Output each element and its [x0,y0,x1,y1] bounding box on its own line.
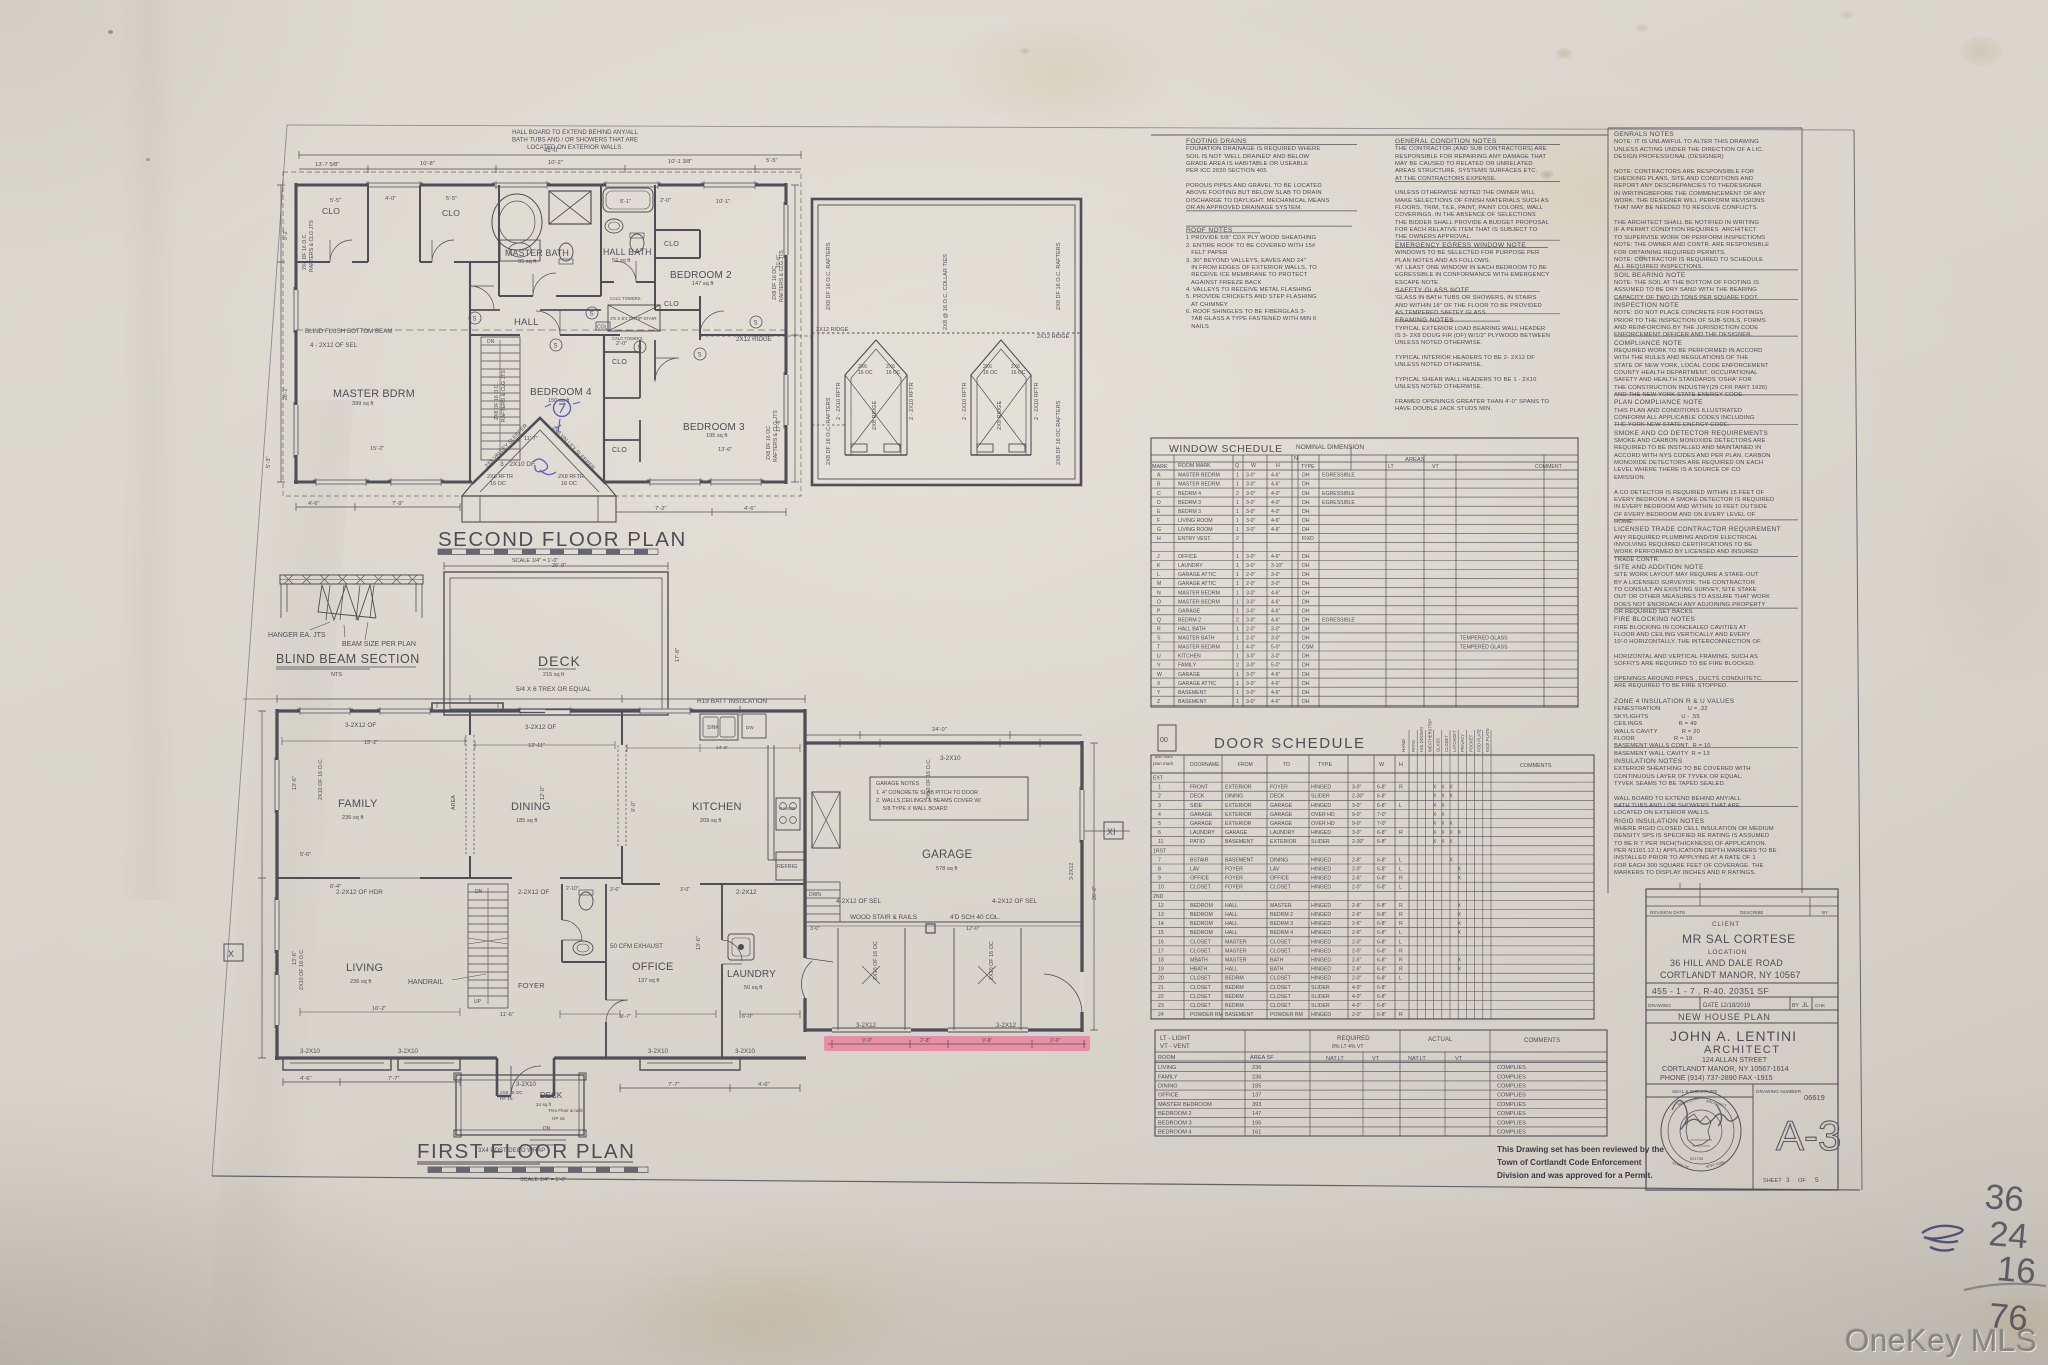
svg-text:3'-0": 3'-0" [680,887,690,893]
svg-text:CLOSET: CLOSET [1270,948,1292,954]
svg-text:CLOSET: CLOSET [1190,939,1212,945]
svg-text:HINGED: HINGED [1311,903,1331,909]
svg-text:LIVING: LIVING [346,962,383,974]
svg-text:1: 1 [1236,527,1239,533]
svg-text:5/8 TYPE X WALL BOARD: 5/8 TYPE X WALL BOARD [883,806,948,812]
svg-text:2'-8": 2'-8" [920,1038,930,1044]
svg-text:ARCHITECT: ARCHITECT [1704,1044,1780,1056]
svg-text:CLO: CLO [664,301,679,308]
svg-text:D: D [1157,500,1161,506]
svg-text:236 sq ft: 236 sq ft [342,815,364,821]
svg-text:COMPLIES: COMPLIES [1497,1111,1526,1117]
svg-text:6-8": 6-8" [1377,803,1386,809]
svg-text:12: 12 [1158,903,1164,909]
svg-text:3-0": 3-0" [1352,830,1361,836]
svg-text:1: 1 [1236,608,1239,614]
svg-text:19: 19 [1158,967,1164,973]
svg-text:MR SAL CORTESE: MR SAL CORTESE [1682,932,1796,946]
svg-text:Q: Q [1235,463,1239,469]
svg-text:00: 00 [1160,737,1168,744]
svg-text:DH: DH [1302,482,1310,488]
svg-text:CORTLANDT MANOR, NY 10567: CORTLANDT MANOR, NY 10567 [1660,970,1801,980]
svg-text:RAFTERS & CLG JTS: RAFTERS & CLG JTS [309,220,315,272]
svg-text:15'-2": 15'-2" [370,446,384,452]
svg-text:17: 17 [1158,948,1164,954]
svg-text:SLIDER: SLIDER [1311,794,1330,800]
svg-text:L: L [1157,572,1160,578]
svg-text:4-0": 4-0" [1352,985,1361,991]
svg-text:JOHN A. LENTINI: JOHN A. LENTINI [1670,1028,1797,1044]
svg-text:2-6": 2-6" [1352,921,1361,927]
svg-text:4-6": 4-6" [1271,690,1280,696]
svg-text:16 OC: 16 OC [886,370,901,376]
svg-text:2-6": 2-6" [1352,876,1361,882]
svg-text:13'-7 5/8": 13'-7 5/8" [315,162,339,168]
svg-text:9'-0": 9'-0" [631,801,637,812]
svg-text:12'-11": 12'-11" [528,743,545,749]
svg-text:LAUNDRY: LAUNDRY [1190,830,1215,836]
svg-text:DWN: DWN [809,892,821,898]
svg-text:HALL: HALL [514,317,539,328]
svg-text:BEAM SIZE PER PLAN: BEAM SIZE PER PLAN [342,641,416,648]
svg-text:3-2X12: 3-2X12 [996,1022,1017,1029]
svg-text:TO: TO [1283,762,1290,768]
svg-text:16 OC: 16 OC [490,481,506,487]
svg-text:1: 1 [1236,581,1239,587]
svg-text:3'-0": 3'-0" [810,926,820,932]
svg-text:GARAGE: GARAGE [1270,812,1293,818]
svg-text:X: X [1433,803,1437,809]
svg-text:137: 137 [1252,1093,1261,1099]
svg-text:X: X [1458,903,1462,909]
svg-text:2-0": 2-0" [1352,867,1361,873]
svg-text:V: V [1157,663,1161,669]
svg-text:2: 2 [1158,794,1161,800]
svg-text:2-6": 2-6" [1352,930,1361,936]
svg-text:5: 5 [1158,821,1161,827]
svg-text:NAT.LT: NAT.LT [1408,1056,1426,1062]
svg-text:GARAGE NOTES: GARAGE NOTES [876,781,920,787]
svg-text:COMPLIES: COMPLIES [1497,1102,1526,1108]
svg-text:X: X [1458,967,1462,973]
svg-text:CLIENT: CLIENT [1712,921,1740,928]
svg-text:3-2X10: 3-2X10 [735,1048,756,1055]
svg-text:DECK: DECK [538,653,581,669]
svg-text:CLOSET: CLOSET [1270,985,1292,991]
svg-text:EXTERIOR: EXTERIOR [1225,803,1252,809]
svg-text:OF: OF [1798,1178,1806,1184]
svg-text:9'-7": 9'-7" [620,1014,631,1020]
svg-text:3-2X12: 3-2X12 [1069,863,1075,880]
svg-text:4'D SCH 40 COL.: 4'D SCH 40 COL. [950,914,1000,921]
svg-text:DECK: DECK [1190,794,1205,800]
svg-text:195: 195 [1252,1120,1261,1126]
svg-text:9'-2": 9'-2" [283,230,289,240]
svg-text:CLO: CLO [612,359,627,366]
svg-text:4-0": 4-0" [1271,509,1280,515]
svg-text:2X12 RIDGE: 2X12 RIDGE [1037,334,1070,340]
svg-text:3-0": 3-0" [1246,518,1255,524]
svg-text:BATH: BATH [1270,967,1284,973]
svg-text:1RST: 1RST [1153,848,1167,854]
svg-text:FIRST FLOOR PLAN: FIRST FLOOR PLAN [417,1140,635,1163]
svg-text:4-6": 4-6" [1271,590,1280,596]
svg-text:DH: DH [1302,608,1310,614]
svg-text:X: X [1433,785,1437,791]
svg-text:2-0": 2-0" [1352,939,1361,945]
svg-text:SECOND FLOOR PLAN: SECOND FLOOR PLAN [438,528,687,551]
svg-text:FRONT: FRONT [1190,785,1209,791]
svg-text:8: 8 [1158,867,1161,873]
svg-text:3-0": 3-0" [1246,699,1255,705]
svg-text:BEDRM 3: BEDRM 3 [1178,500,1201,506]
svg-text:X: X [228,949,234,959]
svg-text:DINING: DINING [1270,857,1288,863]
svg-text:R: R [1399,967,1403,973]
svg-text:13'-6": 13'-6" [292,951,298,965]
svg-text:E: E [1157,509,1161,515]
svg-text:F: F [1157,518,1160,524]
svg-text:3-0": 3-0" [1246,681,1255,687]
svg-text:COMMENTS: COMMENTS [1520,763,1552,769]
svg-text:WEATHERSTRIP: WEATHERSTRIP [1427,719,1432,752]
svg-text:7'-7": 7'-7" [388,1076,400,1082]
svg-text:BEDRM: BEDRM [1225,976,1244,982]
svg-text:7-0": 7-0" [1377,821,1386,827]
svg-text:GLASS: GLASS [1436,738,1441,752]
svg-text:3-0": 3-0" [1246,590,1255,596]
svg-text:X: X [1441,794,1445,800]
svg-text:CLOSET: CLOSET [1270,885,1292,891]
svg-text:1: 1 [1236,699,1239,705]
svg-text:LAV: LAV [1270,867,1280,873]
svg-text:2X8 RIDGE: 2X8 RIDGE [872,401,878,430]
svg-text:ROOM MARK: ROOM MARK [1178,463,1211,469]
svg-text:DH: DH [1302,627,1310,633]
svg-text:X: X [1458,912,1462,918]
svg-text:Z: Z [1157,699,1160,705]
svg-text:BEDROOM 2: BEDROOM 2 [670,270,732,281]
svg-text:NOMINAL DIMENSION: NOMINAL DIMENSION [1296,444,1364,451]
svg-text:R: R [1399,1012,1403,1018]
svg-text:GARAGE: GARAGE [1190,812,1213,818]
svg-text:16: 16 [1158,939,1164,945]
svg-text:21: 21 [1158,985,1164,991]
svg-text:G: G [1157,527,1161,533]
svg-text:FOYER: FOYER [518,981,545,990]
svg-text:SLIDER: SLIDER [1311,994,1330,1000]
svg-text:1: 1 [1236,500,1239,506]
svg-text:SHEET: SHEET [1763,1178,1782,1184]
svg-text:SIDE: SIDE [1190,803,1203,809]
svg-text:2'-10": 2'-10" [566,886,579,892]
svg-text:MASTER BEDRM: MASTER BEDRM [1178,590,1220,596]
svg-text:2-30": 2-30" [1352,794,1364,800]
svg-text:LAUNDRY: LAUNDRY [727,969,776,980]
svg-text:AREAS: AREAS [1405,457,1425,463]
svg-text:COMPLIES: COMPLIES [1497,1074,1526,1080]
svg-text:4'-6": 4'-6" [758,1082,770,1088]
svg-text:DRAWING NUMBER: DRAWING NUMBER [1756,1089,1802,1095]
svg-text:16 OC: 16 OC [858,370,873,376]
svg-text:HALL: HALL [1225,967,1238,973]
svg-text:CLO: CLO [664,241,679,248]
svg-text:3-2X10: 3-2X10 [648,1048,669,1055]
svg-text:1: 1 [1236,482,1239,488]
svg-text:6-8": 6-8" [1377,794,1386,800]
svg-text:LIVING ROOM: LIVING ROOM [1178,527,1213,533]
svg-text:DINING: DINING [511,801,551,813]
svg-text:BATH: BATH [1270,958,1284,964]
svg-text:2X10 OF 16 OC: 2X10 OF 16 OC [989,941,995,980]
svg-text:COMMENTS: COMMENTS [1524,1037,1560,1044]
svg-text:MASTER BEDRM: MASTER BEDRM [1178,645,1220,651]
svg-text:3-0": 3-0" [1352,803,1361,809]
svg-text:147 sq ft: 147 sq ft [692,281,714,287]
svg-text:1: 1 [1236,599,1239,605]
svg-text:X: X [1433,794,1437,800]
svg-text:10: 10 [1158,885,1164,891]
svg-text:2X8 DF 16 O.C.: 2X8 DF 16 O.C. [494,383,500,420]
svg-text:236 sq ft: 236 sq ft [350,979,372,985]
svg-text:CLOSET: CLOSET [1270,1003,1292,1009]
svg-text:S: S [590,312,594,318]
svg-text:MASTER BEDRM: MASTER BEDRM [1178,599,1220,605]
svg-text:1: 1 [1236,572,1239,578]
svg-text:2-2X12 OF: 2-2X12 OF [518,889,549,896]
svg-text:13: 13 [1158,912,1164,918]
svg-text:SLIDER: SLIDER [1311,839,1330,845]
svg-text:VT: VT [1455,1056,1463,1062]
svg-text:3-2X12 OF: 3-2X12 OF [345,722,376,729]
svg-text:3-2X10: 3-2X10 [398,1048,419,1055]
svg-text:A: A [1157,473,1161,479]
svg-text:2'6 X 5'4 DROP STAIR: 2'6 X 5'4 DROP STAIR [610,316,657,321]
svg-text:1: 1 [1236,627,1239,633]
svg-text:SINK: SINK [707,725,719,731]
svg-text:1: 1 [1236,636,1239,642]
svg-text:DH: DH [1302,554,1310,560]
svg-text:16 OC: 16 OC [561,481,577,487]
svg-text:2X10 OF 16 O.C.: 2X10 OF 16 O.C. [299,948,305,990]
svg-text:2: 2 [1236,663,1239,669]
svg-text:4-2X12 OF SEL: 4-2X12 OF SEL [836,898,882,905]
svg-text:BEDROM: BEDROM [1190,930,1213,936]
svg-text:195 sq ft: 195 sq ft [706,433,728,439]
svg-text:GARAGE: GARAGE [1225,830,1248,836]
svg-text:021755: 021755 [1690,1156,1704,1161]
svg-text:DESCRIBE: DESCRIBE [1740,910,1764,915]
svg-text:PRIVACY: PRIVACY [1460,734,1465,752]
svg-text:R: R [1399,921,1403,927]
svg-text:X: X [1441,803,1445,809]
svg-text:DH: DH [1302,663,1310,669]
svg-text:4-0": 4-0" [1246,645,1255,651]
svg-text:4'-6": 4'-6" [308,501,320,507]
svg-text:GARAGE ATTIC: GARAGE ATTIC [1178,581,1216,587]
svg-text:HINGED: HINGED [1311,939,1331,945]
svg-text:BEDRM 4: BEDRM 4 [1178,491,1201,497]
svg-text:FOYER: FOYER [1270,785,1288,791]
svg-text:17'-6": 17'-6" [776,419,782,432]
svg-text:PATIO: PATIO [1411,739,1416,752]
svg-text:4-6": 4-6" [1271,608,1280,614]
svg-text:DECK: DECK [540,1091,563,1100]
svg-text:X: X [1458,958,1462,964]
svg-text:VT: VT [1372,1056,1380,1062]
svg-text:L: L [1399,939,1402,945]
svg-text:3-2X10: 3-2X10 [940,755,961,762]
svg-text:2X10 OF 16 OC: 2X10 OF 16 OC [873,941,879,980]
svg-text:HINGED: HINGED [1311,967,1331,973]
svg-text:UP: UP [474,999,482,1005]
svg-text:J: J [1157,554,1160,560]
svg-text:EXTERIOR: EXTERIOR [1225,785,1252,791]
svg-text:HBATH: HBATH [1190,967,1207,973]
svg-text:X: X [1458,921,1462,927]
svg-text:FROM: FROM [1238,762,1253,768]
svg-text:4'-0": 4'-0" [385,196,396,202]
svg-text:3-2X12 OF: 3-2X12 OF [525,724,556,731]
svg-text:14: 14 [1158,921,1164,927]
svg-text:FOYER: FOYER [1225,876,1243,882]
svg-text:NTS: NTS [331,672,342,678]
svg-text:X: X [1433,839,1437,845]
svg-text:12'-0": 12'-0" [540,786,546,800]
svg-text:Y: Y [1157,690,1161,696]
svg-text:1: 1 [1236,554,1239,560]
svg-text:R: R [1399,785,1403,791]
svg-text:N: N [1294,456,1298,462]
svg-text:plan mark: plan mark [1153,761,1174,766]
svg-text:6-8": 6-8" [1377,985,1386,991]
svg-text:BY: BY [1822,910,1828,915]
svg-text:REGISTERED: REGISTERED [1677,1096,1701,1107]
svg-text:H: H [1276,463,1280,469]
svg-text:GARAGE: GARAGE [1270,821,1293,827]
svg-text:3-0": 3-0" [1271,572,1280,578]
svg-text:5'-6": 5'-6" [300,852,311,858]
svg-text:MASTER: MASTER [1225,948,1247,954]
svg-text:X: X [1441,785,1445,791]
svg-text:K: K [1157,563,1161,569]
svg-text:DN: DN [475,889,483,895]
svg-text:DH: DH [1302,491,1310,497]
svg-text:5'-5": 5'-5" [446,196,457,202]
svg-text:L: L [1399,885,1402,891]
svg-text:C: C [1157,491,1161,497]
svg-text:2 - 2X10 RFTR: 2 - 2X10 RFTR [1034,382,1040,420]
svg-text:EGRESSIBLE: EGRESSIBLE [1322,491,1355,497]
svg-text:LAUNDRY: LAUNDRY [1270,830,1295,836]
svg-text:26'-0": 26'-0" [1092,886,1098,900]
svg-text:4-6": 4-6" [1271,482,1280,488]
svg-text:2X8 DF 16 O.C.: 2X8 DF 16 O.C. [302,233,308,270]
svg-text:10'-1 3/8": 10'-1 3/8" [668,159,692,165]
svg-text:W: W [1251,463,1256,469]
svg-text:BLIND FLUSH BOTTOM BEAM: BLIND FLUSH BOTTOM BEAM [305,328,393,335]
svg-text:52 sq ft: 52 sq ft [612,258,631,264]
svg-text:50 sq ft: 50 sq ft [744,985,763,991]
svg-text:2X10 OF 16 O.C.: 2X10 OF 16 O.C. [318,758,324,800]
svg-text:CSM: CSM [1302,645,1314,651]
svg-text:PHONE (914) 737-2890 FAX -1915: PHONE (914) 737-2890 FAX -1915 [1660,1073,1773,1082]
svg-text:393: 393 [1252,1102,1261,1108]
svg-text:6'-0": 6'-0" [742,1014,753,1020]
svg-text:X: X [1449,821,1453,827]
svg-text:5'-5": 5'-5" [330,198,341,204]
svg-text:CLOSET: CLOSET [1190,985,1212,991]
svg-text:HOLDDOWN: HOLDDOWN [1419,727,1424,752]
svg-text:COMPLIES: COMPLIES [1497,1065,1526,1071]
svg-text:S: S [638,346,642,352]
svg-text:DH: DH [1302,654,1310,660]
svg-text:5-0": 5-0" [1271,645,1280,651]
svg-text:4-6": 4-6" [1271,681,1280,687]
svg-text:2-8": 2-8" [1352,903,1361,909]
svg-text:4-0": 4-0" [1271,491,1280,497]
svg-text:1: 1 [1236,518,1239,524]
svg-text:1: 1 [1236,672,1239,678]
svg-text:2X8 DF 16 O.C. RAFTERS: 2X8 DF 16 O.C. RAFTERS [826,242,832,310]
svg-text:4-6": 4-6" [1271,527,1280,533]
svg-text:2'-0": 2'-0" [1050,1038,1060,1044]
svg-text:HINGED: HINGED [1311,1012,1331,1018]
svg-text:S: S [1157,636,1161,642]
svg-text:2-0": 2-0" [1246,627,1255,633]
svg-text:6-8": 6-8" [1377,1012,1386,1018]
svg-text:9-0": 9-0" [1352,821,1361,827]
svg-text:13'-6": 13'-6" [696,936,702,950]
svg-text:6-8": 6-8" [1377,876,1386,882]
svg-text:3: 3 [1786,1177,1790,1184]
svg-text:POWDER RM: POWDER RM [1190,1012,1223,1018]
svg-text:36: 36 [1983,1177,2025,1219]
svg-text:BEDRM: BEDRM [1225,1003,1244,1009]
svg-text:9-0": 9-0" [1352,812,1361,818]
svg-text:SLIDER: SLIDER [1311,985,1330,991]
svg-text:2-0": 2-0" [1352,948,1361,954]
svg-text:6-8": 6-8" [1377,930,1386,936]
svg-text:1: 1 [1236,645,1239,651]
svg-text:REVISION DATE: REVISION DATE [1650,910,1685,915]
svg-text:LT - LIGHT: LT - LIGHT [1160,1035,1191,1042]
svg-text:2-0": 2-0" [1352,976,1361,982]
svg-text:KITCHEN: KITCHEN [692,801,742,813]
svg-text:TEMPERED GLASS: TEMPERED GLASS [1460,636,1508,642]
svg-text:28'-1": 28'-1" [283,387,289,400]
svg-text:6-8": 6-8" [1377,921,1386,927]
svg-text:HINGED: HINGED [1311,921,1331,927]
svg-text:EGRESSIBLE: EGRESSIBLE [1322,473,1355,479]
svg-text:2-0": 2-0" [1246,572,1255,578]
svg-text:11'-7": 11'-7" [524,436,538,442]
svg-text:13'-6": 13'-6" [292,776,298,790]
svg-text:BEDROOM 3: BEDROOM 3 [1158,1120,1192,1126]
svg-text:X: X [1449,794,1453,800]
svg-text:3-0": 3-0" [1246,618,1255,624]
svg-text:GARAGE ATTIC: GARAGE ATTIC [1178,681,1216,687]
svg-text:VT - VENT: VT - VENT [1160,1043,1190,1050]
svg-text:6-8": 6-8" [1377,939,1386,945]
svg-text:OVER HD: OVER HD [1311,812,1335,818]
svg-text:CLOSET: CLOSET [1270,939,1292,945]
svg-text:HALL BOARD TO EXTEND BEHIND AN: HALL BOARD TO EXTEND BEHIND ANY/ALL [512,129,638,136]
svg-text:RAFTERS & CLG JTS: RAFTERS & CLG JTS [773,410,779,462]
svg-text:9'-8": 9'-8" [982,1038,992,1044]
svg-text:CLOSET: CLOSET [1270,994,1292,1000]
svg-text:CALC TOWERS: CALC TOWERS [612,336,643,341]
